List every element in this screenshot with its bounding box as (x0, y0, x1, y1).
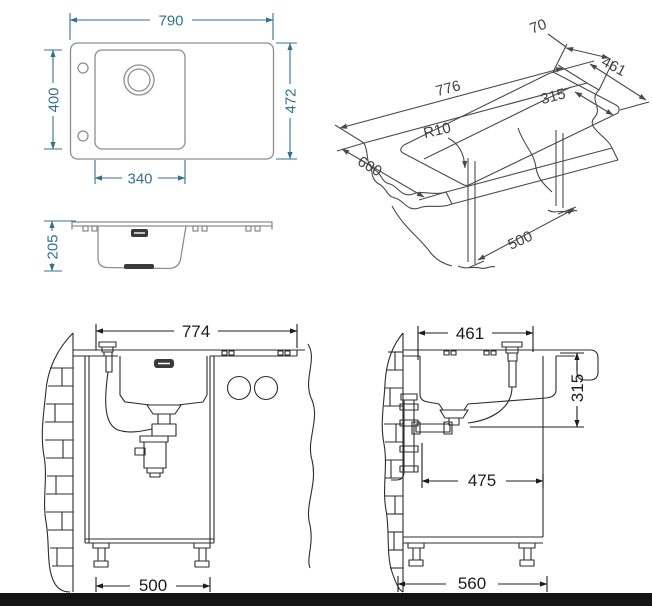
drain-assembly-side (412, 410, 468, 434)
svg-text:461: 461 (456, 324, 484, 343)
cabinet-front (85, 356, 214, 543)
cabinet-leg (408, 543, 424, 566)
brick-courses (384, 352, 403, 568)
cabinet-leg (93, 543, 109, 567)
cabinet-side (403, 356, 543, 543)
dim-560: 560 (398, 574, 547, 593)
counter-clips (222, 351, 290, 355)
bowl-side-section (420, 356, 556, 410)
svg-text:500: 500 (139, 576, 167, 595)
counter-break-lower-edge (370, 164, 452, 209)
dim-500-front: 500 (96, 576, 210, 595)
svg-text:790: 790 (158, 12, 183, 29)
dim-472: 472 (276, 43, 299, 159)
cabinet-panel-right (548, 130, 577, 212)
counter-clips (444, 351, 496, 355)
svg-text:315: 315 (568, 374, 587, 402)
svg-text:315: 315 (539, 85, 568, 108)
svg-text:560: 560 (458, 574, 486, 593)
break-wave-left (392, 206, 452, 266)
plan-view: 790 472 400 340 (44, 12, 299, 187)
dim-774: 774 (96, 322, 297, 350)
drain-assembly-front (135, 405, 181, 477)
svg-text:R10: R10 (422, 119, 453, 142)
sink-technical-drawing: 790 472 400 340 (0, 0, 652, 606)
dim-500-iso: 500 (468, 207, 576, 268)
overflow-assembly (468, 342, 522, 423)
counter-front-left-corner (446, 192, 452, 204)
tap-hole-bottom (78, 131, 88, 141)
dim-70: 70 (528, 16, 613, 90)
faucet-fitting (99, 342, 116, 372)
cabinet-leg (194, 543, 210, 567)
svg-text:205: 205 (44, 234, 61, 259)
knockout-hole-right (255, 377, 278, 400)
counter-front-bottom-edge (452, 160, 618, 204)
side-section-view: 461 315 475 560 (382, 324, 598, 593)
front-section-view: 774 500 (42, 322, 314, 595)
break-line-right (308, 344, 315, 568)
countertop-front (73, 344, 315, 568)
dim-205: 205 (44, 221, 76, 271)
cabinet-leg (519, 543, 535, 566)
wall-right-view (382, 333, 403, 592)
dim-475: 475 (422, 443, 543, 490)
dim-400: 400 (44, 50, 62, 149)
svg-text:475: 475 (468, 471, 496, 490)
dim-315-side: 315 (470, 353, 587, 427)
counter-front-right-corner (612, 148, 618, 160)
dim-340: 340 (95, 160, 185, 187)
mounting-clips (83, 226, 260, 231)
svg-text:340: 340 (127, 170, 152, 187)
dim-600: 600 (337, 143, 446, 200)
brick-courses (45, 368, 73, 566)
svg-text:472: 472 (282, 88, 299, 113)
profile-view: 205 (44, 221, 272, 271)
tap-hole-top (78, 63, 88, 73)
dim-790: 790 (70, 12, 273, 40)
counter-top-face (364, 83, 612, 195)
svg-text:70: 70 (528, 16, 549, 38)
drawing-sheet: 790 472 400 340 (0, 0, 652, 606)
svg-text:774: 774 (182, 322, 210, 341)
footer-bar (0, 593, 652, 606)
svg-text:400: 400 (45, 87, 62, 112)
drain-profile (124, 264, 154, 269)
sink-outer-outline (71, 43, 274, 159)
drain-inner-circle (128, 69, 150, 91)
svg-text:461: 461 (599, 53, 629, 80)
wall-pipe (391, 394, 418, 480)
dim-r10: R10 (422, 119, 465, 168)
iso-view: 776 70 461 315 R10 (335, 16, 649, 269)
knockout-hole-left (228, 377, 251, 400)
wall-left (42, 333, 73, 592)
dim-315-iso: 315 (539, 85, 613, 115)
